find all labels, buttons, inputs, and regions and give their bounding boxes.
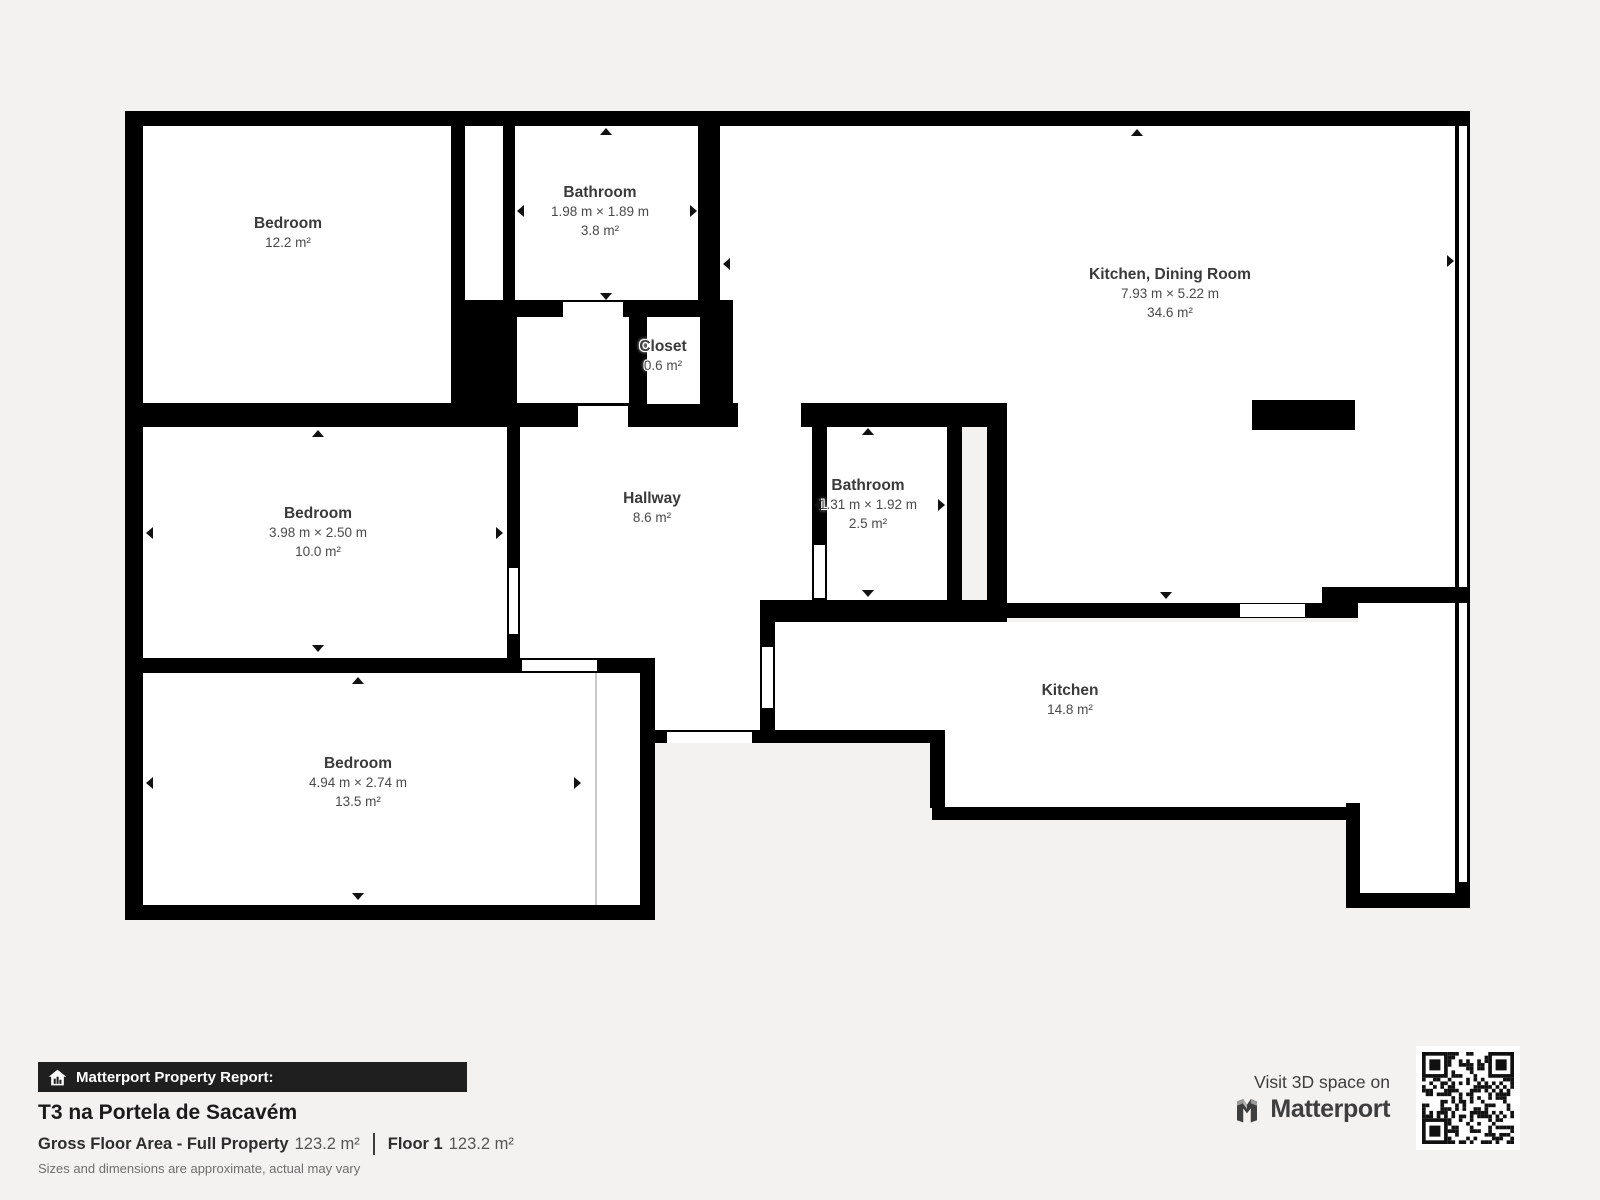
room-name: Closet bbox=[639, 337, 686, 356]
report-bar-label: Matterport Property Report: bbox=[76, 1069, 274, 1086]
wall bbox=[640, 673, 655, 920]
dimension-arrow-right bbox=[690, 205, 697, 217]
wall bbox=[947, 427, 962, 600]
property-title: T3 na Portela de Sacavém bbox=[38, 1101, 297, 1125]
dimension-arrow-down bbox=[352, 893, 364, 900]
room-area: 12.2 m² bbox=[254, 233, 322, 252]
room-area: 13.5 m² bbox=[309, 792, 407, 811]
dimension-arrow-right bbox=[574, 777, 581, 789]
room-dimensions: 1.31 m × 1.92 m bbox=[819, 495, 917, 514]
dimension-arrow-left bbox=[517, 205, 524, 217]
door-opening bbox=[1240, 604, 1305, 617]
room-name: Bathroom bbox=[819, 476, 917, 495]
room-floor-area bbox=[517, 317, 629, 403]
matterport-wordmark: Matterport bbox=[1270, 1095, 1390, 1124]
room-name: Bedroom bbox=[254, 214, 322, 233]
wall bbox=[1455, 882, 1470, 908]
wall bbox=[1467, 111, 1470, 908]
room-area: 3.8 m² bbox=[551, 221, 649, 240]
dimension-arrow-left bbox=[146, 777, 153, 789]
dimension-arrow-left bbox=[814, 499, 821, 511]
gross-floor-area-value: 123.2 m² bbox=[295, 1135, 360, 1154]
door-opening bbox=[509, 568, 518, 634]
wall bbox=[503, 126, 515, 300]
wall bbox=[451, 317, 517, 403]
room-name: Kitchen, Dining Room bbox=[1089, 265, 1251, 284]
dimension-arrow-up bbox=[600, 128, 612, 135]
dimension-arrow-down bbox=[862, 590, 874, 597]
gross-floor-area-label: Gross Floor Area - Full Property bbox=[38, 1135, 289, 1154]
dimension-arrow-right bbox=[1447, 255, 1454, 267]
door-opening bbox=[563, 302, 623, 317]
dimension-arrow-right bbox=[938, 499, 945, 511]
kitchen-counter-block bbox=[1252, 400, 1355, 430]
door-opening bbox=[578, 406, 628, 427]
room-floor-area bbox=[775, 622, 1455, 730]
room-floor-area bbox=[945, 730, 1455, 807]
door-opening bbox=[667, 732, 752, 743]
dimension-arrow-left bbox=[146, 527, 153, 539]
room-label: Bedroom12.2 m² bbox=[254, 214, 322, 252]
qr-code-pattern bbox=[1416, 1046, 1520, 1150]
dimension-arrow-up bbox=[1131, 129, 1143, 136]
wall bbox=[125, 111, 1470, 126]
room-dimensions: 4.94 m × 2.74 m bbox=[309, 773, 407, 792]
room-floor-area bbox=[720, 126, 1455, 403]
room-label: Kitchen14.8 m² bbox=[1042, 681, 1099, 719]
closet-partition-line bbox=[595, 673, 597, 905]
room-area: 34.6 m² bbox=[1089, 303, 1251, 322]
dimension-arrow-down bbox=[600, 293, 612, 300]
wall bbox=[1322, 587, 1470, 603]
wall bbox=[698, 126, 720, 300]
room-name: Bathroom bbox=[551, 183, 649, 202]
visit-3d-space-text: Visit 3D space on bbox=[1254, 1072, 1390, 1093]
room-label: Bathroom1.98 m × 1.89 m3.8 m² bbox=[551, 183, 649, 240]
room-floor-area bbox=[465, 126, 503, 300]
room-area: 0.6 m² bbox=[639, 356, 686, 375]
matterport-logo-link[interactable]: Matterport bbox=[1232, 1094, 1390, 1124]
door-opening bbox=[522, 660, 597, 671]
wall bbox=[930, 743, 945, 808]
room-dimensions: 1.98 m × 1.89 m bbox=[551, 202, 649, 221]
room-floor-area bbox=[1459, 126, 1467, 882]
door-opening bbox=[738, 403, 801, 427]
dimension-arrow-up bbox=[352, 677, 364, 684]
floor-plan: Bedroom12.2 m²Bathroom1.98 m × 1.89 m3.8… bbox=[0, 0, 1600, 1200]
room-name: Bedroom bbox=[269, 504, 367, 523]
house-report-icon bbox=[48, 1068, 67, 1087]
room-label: Kitchen, Dining Room7.93 m × 5.22 m34.6 … bbox=[1089, 265, 1251, 322]
wall bbox=[125, 403, 1007, 427]
door-opening bbox=[814, 545, 825, 598]
room-dimensions: 3.98 m × 2.50 m bbox=[269, 523, 367, 542]
room-area: 2.5 m² bbox=[819, 514, 917, 533]
wall bbox=[1346, 893, 1470, 908]
wall bbox=[1007, 603, 1358, 618]
room-floor-area bbox=[655, 658, 760, 730]
stats-divider bbox=[373, 1133, 375, 1155]
room-area: 14.8 m² bbox=[1042, 700, 1099, 719]
dimension-arrow-down bbox=[312, 645, 324, 652]
wall bbox=[1455, 126, 1459, 882]
room-label: Bedroom4.94 m × 2.74 m13.5 m² bbox=[309, 754, 407, 811]
dimension-arrow-left bbox=[723, 258, 730, 270]
dimension-arrow-up bbox=[312, 430, 324, 437]
room-name: Bedroom bbox=[309, 754, 407, 773]
room-floor-area bbox=[520, 600, 760, 658]
floor-label: Floor 1 bbox=[388, 1135, 443, 1154]
matterport-m-logo-icon bbox=[1232, 1094, 1262, 1124]
wall bbox=[125, 905, 655, 920]
room-floor-area bbox=[1358, 602, 1455, 622]
room-dimensions: 7.93 m × 5.22 m bbox=[1089, 284, 1251, 303]
dimension-arrow-down bbox=[1160, 592, 1172, 599]
room-area: 10.0 m² bbox=[269, 542, 367, 561]
wall bbox=[1346, 803, 1360, 895]
report-header-bar: Matterport Property Report: bbox=[38, 1062, 467, 1092]
disclaimer-text: Sizes and dimensions are approximate, ac… bbox=[38, 1161, 360, 1176]
room-floor-area bbox=[143, 126, 451, 403]
wall bbox=[760, 600, 1007, 622]
area-stats: Gross Floor Area - Full Property 123.2 m… bbox=[38, 1133, 514, 1155]
room-floor-area bbox=[1007, 403, 1455, 603]
room-name: Kitchen bbox=[1042, 681, 1099, 700]
room-label: Hallway8.6 m² bbox=[623, 489, 681, 527]
wall bbox=[125, 111, 143, 920]
wall bbox=[932, 807, 1360, 820]
floor-value: 123.2 m² bbox=[449, 1135, 514, 1154]
room-area: 8.6 m² bbox=[623, 508, 681, 527]
dimension-arrow-up bbox=[862, 428, 874, 435]
dimension-arrow-right bbox=[496, 527, 503, 539]
door-opening bbox=[762, 647, 773, 708]
room-label: Bathroom1.31 m × 1.92 m2.5 m² bbox=[819, 476, 917, 533]
room-label: Closet0.6 m² bbox=[639, 337, 686, 375]
qr-code bbox=[1416, 1046, 1520, 1150]
room-label: Bedroom3.98 m × 2.50 m10.0 m² bbox=[269, 504, 367, 561]
matterport-floorplan-report-page: Bedroom12.2 m²Bathroom1.98 m × 1.89 m3.8… bbox=[0, 0, 1600, 1200]
room-floor-area bbox=[1360, 807, 1455, 893]
room-name: Hallway bbox=[623, 489, 681, 508]
wall bbox=[987, 403, 1007, 622]
